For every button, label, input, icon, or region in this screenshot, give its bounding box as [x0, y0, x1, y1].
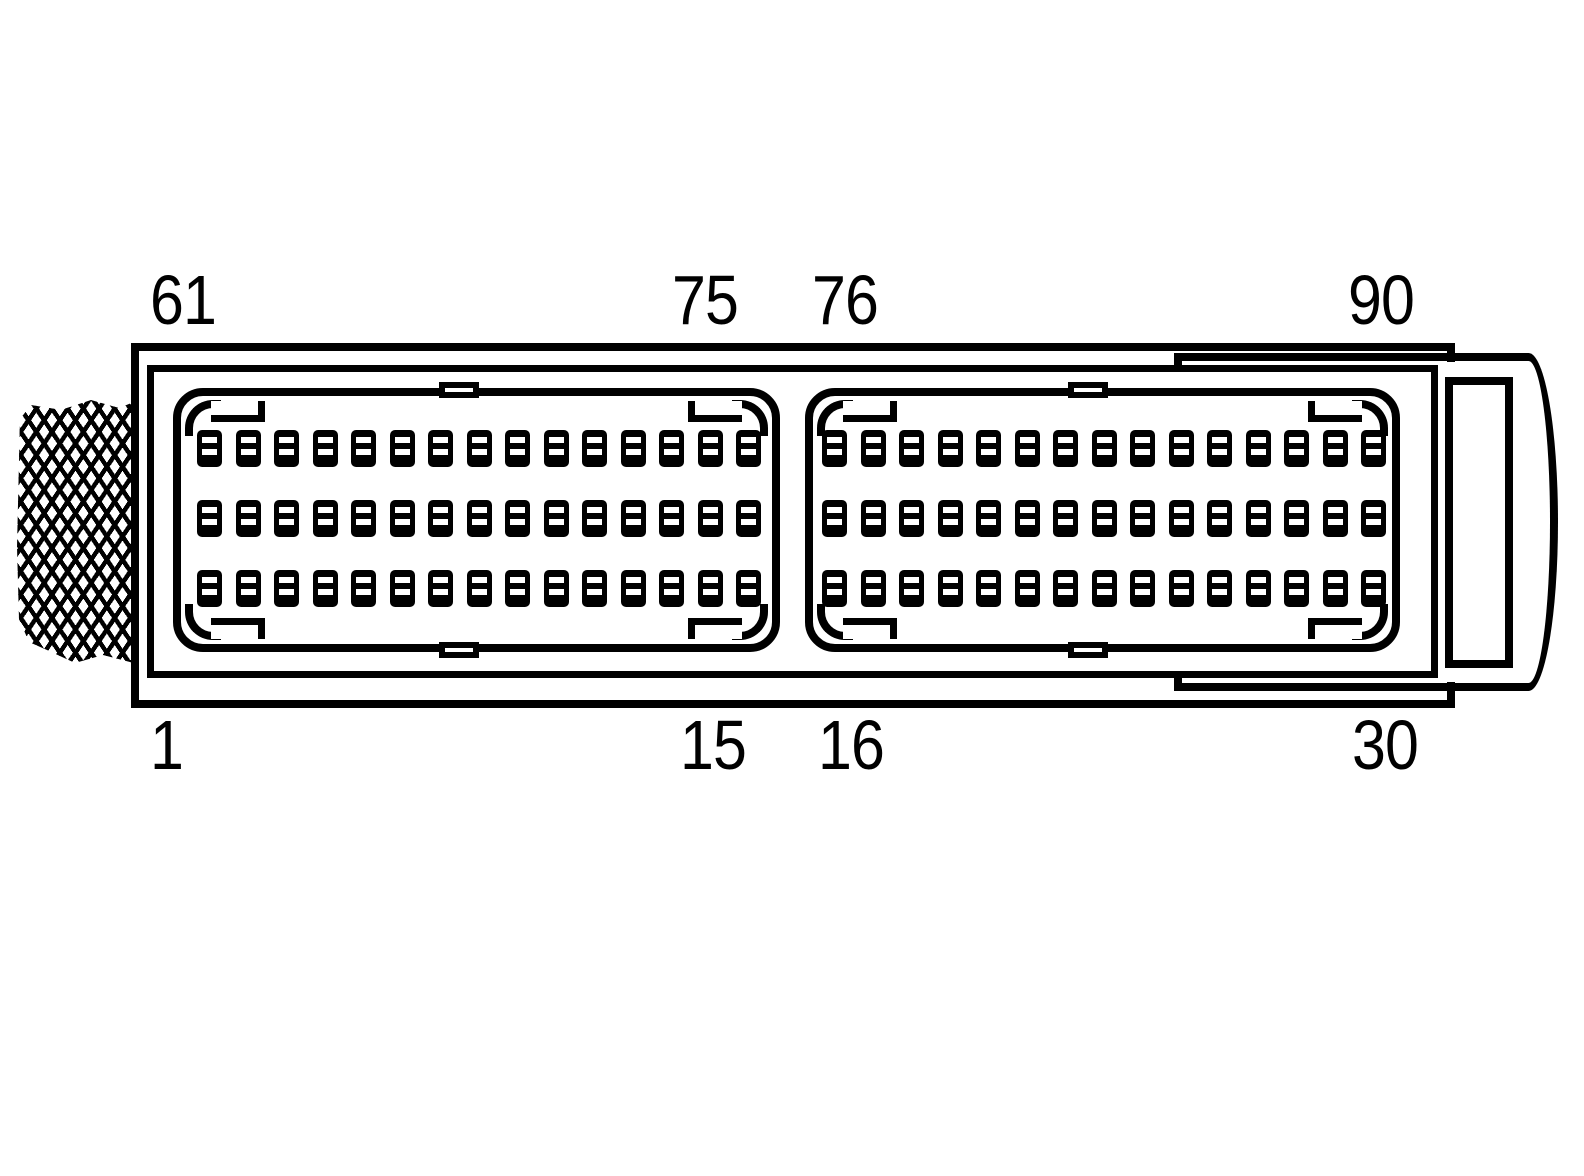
pin-contact-slots — [241, 507, 256, 525]
pin-contact-slots — [626, 507, 641, 525]
pin-contact-slots — [664, 577, 679, 595]
pin-contact — [1169, 570, 1194, 607]
pin-contact-slots — [1328, 507, 1343, 525]
pin-contact-slots — [1366, 507, 1381, 525]
pin-contact — [1207, 570, 1232, 607]
corner-key-notch — [843, 401, 897, 422]
pin-contact-slots — [202, 577, 217, 595]
pin-contact-slots — [703, 437, 718, 455]
pin-contact — [899, 500, 924, 537]
pin-contact-slots — [1289, 437, 1304, 455]
pin-contact — [1092, 500, 1117, 537]
pin-block-1 — [173, 388, 780, 652]
pin-contact-slots — [626, 437, 641, 455]
pin-contact-slots — [433, 437, 448, 455]
pin-contact-slots — [827, 437, 842, 455]
pin-contact-slots — [1135, 507, 1150, 525]
pin-contact — [467, 430, 492, 467]
pin-contact-slots — [943, 437, 958, 455]
pin-contact-slots — [626, 577, 641, 595]
pin-label-16: 16 — [818, 710, 884, 780]
corner-key-notch — [211, 618, 265, 639]
pin-contact — [1284, 430, 1309, 467]
pin-contact — [736, 570, 761, 607]
pin-contact-slots — [866, 507, 881, 525]
pin-contact-slots — [1366, 437, 1381, 455]
pin-contact — [544, 570, 569, 607]
pin-contact-slots — [549, 507, 564, 525]
pin-contact — [938, 430, 963, 467]
pin-contact — [313, 430, 338, 467]
pin-contact — [351, 430, 376, 467]
pin-contact-slots — [202, 507, 217, 525]
pin-contact — [582, 570, 607, 607]
pin-contact-slots — [433, 577, 448, 595]
corner-key-notch — [211, 401, 265, 422]
pin-contact — [1323, 570, 1348, 607]
pin-label-61: 61 — [150, 265, 216, 335]
pin-contact — [467, 500, 492, 537]
pin-contact — [938, 500, 963, 537]
pin-contact — [1130, 500, 1155, 537]
pin-contact-slots — [703, 507, 718, 525]
pin-contact — [1361, 570, 1386, 607]
pin-contact — [236, 500, 261, 537]
pin-contact — [505, 570, 530, 607]
pin-contact — [467, 570, 492, 607]
pin-contact-slots — [1328, 577, 1343, 595]
pin-contact-slots — [1020, 437, 1035, 455]
pin-label-90: 90 — [1348, 265, 1414, 335]
pin-contact-slots — [395, 437, 410, 455]
pin-contact-slots — [981, 507, 996, 525]
pin-contact-slots — [1058, 507, 1073, 525]
keying-tab-bottom-block2 — [1068, 642, 1108, 658]
pin-contact-slots — [1289, 507, 1304, 525]
pin-contact — [1207, 430, 1232, 467]
pin-contact-slots — [587, 577, 602, 595]
pin-contact — [976, 500, 1001, 537]
pin-contact-slots — [279, 507, 294, 525]
pin-contact-slots — [1135, 577, 1150, 595]
pin-contact — [544, 500, 569, 537]
pin-contact-slots — [866, 577, 881, 595]
pin-contact — [313, 570, 338, 607]
wire-mesh-sleeve — [17, 397, 134, 663]
pin-contact — [351, 570, 376, 607]
pin-contact — [390, 430, 415, 467]
pin-contact — [236, 430, 261, 467]
pin-contact-slots — [703, 577, 718, 595]
pin-contact — [274, 570, 299, 607]
pin-contact-slots — [943, 577, 958, 595]
pin-contact — [659, 500, 684, 537]
pin-contact-slots — [549, 437, 564, 455]
pin-contact-slots — [981, 577, 996, 595]
pin-contact — [659, 570, 684, 607]
pin-contact-slots — [943, 507, 958, 525]
pin-contact — [659, 430, 684, 467]
pin-contact-slots — [510, 577, 525, 595]
pin-contact-slots — [866, 437, 881, 455]
pin-contact — [1246, 500, 1271, 537]
pin-contact-slots — [549, 577, 564, 595]
pin-contact-slots — [241, 437, 256, 455]
pin-contact-slots — [1251, 577, 1266, 595]
pin-contact — [428, 500, 453, 537]
pin-contact — [899, 430, 924, 467]
pin-contact — [698, 430, 723, 467]
pin-contact — [582, 500, 607, 537]
pin-block-2 — [805, 388, 1400, 652]
pin-contact-slots — [472, 437, 487, 455]
ecu-connector-diagram: 61 75 76 90 1 15 16 30 — [0, 0, 1584, 1176]
pin-contact — [197, 500, 222, 537]
pin-contact — [1015, 570, 1040, 607]
pin-contact — [938, 570, 963, 607]
pin-contact-slots — [1174, 507, 1189, 525]
pin-contact-slots — [1058, 437, 1073, 455]
pin-contact — [313, 500, 338, 537]
pin-contact — [1284, 570, 1309, 607]
pin-contact — [1015, 430, 1040, 467]
pin-contact-slots — [741, 507, 756, 525]
pin-contact — [1246, 430, 1271, 467]
pin-contact-slots — [904, 577, 919, 595]
pin-contact-slots — [904, 437, 919, 455]
pin-contact — [1361, 430, 1386, 467]
pin-contact-slots — [1251, 507, 1266, 525]
pin-contact — [1130, 570, 1155, 607]
pin-contact-slots — [318, 507, 333, 525]
pin-contact-slots — [1020, 507, 1035, 525]
pin-contact-slots — [827, 577, 842, 595]
pin-contact — [1323, 430, 1348, 467]
pin-contact — [428, 570, 453, 607]
keying-tab-top-block1 — [439, 382, 479, 398]
corner-key-notch — [843, 618, 897, 639]
corner-key-notch — [688, 618, 742, 639]
pin-label-75: 75 — [672, 265, 738, 335]
pin-contact-slots — [1328, 437, 1343, 455]
pin-contact — [621, 430, 646, 467]
pin-contact-slots — [1212, 437, 1227, 455]
pin-contact-slots — [395, 577, 410, 595]
pin-contact — [822, 570, 847, 607]
pin-contact — [1246, 570, 1271, 607]
pin-contact — [274, 430, 299, 467]
pin-contact-slots — [741, 577, 756, 595]
pin-contact-slots — [472, 507, 487, 525]
pin-contact-slots — [1097, 577, 1112, 595]
pin-contact-slots — [279, 437, 294, 455]
pin-contact-slots — [356, 577, 371, 595]
pin-contact-slots — [241, 577, 256, 595]
pin-contact — [1361, 500, 1386, 537]
pin-label-15: 15 — [680, 710, 746, 780]
pin-label-1: 1 — [150, 710, 183, 780]
pin-contact-slots — [1097, 437, 1112, 455]
pin-contact — [544, 430, 569, 467]
pin-contact — [505, 430, 530, 467]
pin-label-76: 76 — [812, 265, 878, 335]
pin-contact — [621, 500, 646, 537]
pin-contact — [976, 430, 1001, 467]
keying-tab-bottom-block1 — [439, 642, 479, 658]
pin-contact — [822, 500, 847, 537]
corner-key-notch — [688, 401, 742, 422]
pin-contact-slots — [510, 437, 525, 455]
pin-contact-slots — [1366, 577, 1381, 595]
pin-contact-slots — [202, 437, 217, 455]
pin-contact — [1053, 570, 1078, 607]
pin-contact-slots — [587, 437, 602, 455]
pin-contact-slots — [318, 577, 333, 595]
pin-contact — [197, 430, 222, 467]
pin-contact — [861, 570, 886, 607]
pin-contact-slots — [664, 507, 679, 525]
pin-contact — [1207, 500, 1232, 537]
pin-contact — [390, 570, 415, 607]
pin-contact — [1323, 500, 1348, 537]
pin-contact — [351, 500, 376, 537]
corner-key-notch — [1308, 401, 1362, 422]
pin-contact-slots — [1212, 577, 1227, 595]
pin-contact-slots — [904, 507, 919, 525]
pin-contact — [736, 430, 761, 467]
pin-contact-slots — [1135, 437, 1150, 455]
pin-contact-slots — [1212, 507, 1227, 525]
pin-contact — [1284, 500, 1309, 537]
pin-contact — [861, 430, 886, 467]
pin-contact-slots — [356, 507, 371, 525]
pin-contact — [197, 570, 222, 607]
pin-contact-slots — [1058, 577, 1073, 595]
pin-contact-slots — [1097, 507, 1112, 525]
pin-contact — [582, 430, 607, 467]
pin-contact — [1015, 500, 1040, 537]
pin-contact-slots — [664, 437, 679, 455]
pin-contact — [1092, 430, 1117, 467]
pin-contact-slots — [472, 577, 487, 595]
pin-contact — [736, 500, 761, 537]
pin-contact — [1169, 500, 1194, 537]
pin-contact — [1092, 570, 1117, 607]
pin-contact-slots — [356, 437, 371, 455]
pin-contact — [1169, 430, 1194, 467]
pin-contact-slots — [1289, 577, 1304, 595]
pin-contact-slots — [827, 507, 842, 525]
pin-contact — [976, 570, 1001, 607]
pin-contact — [1053, 430, 1078, 467]
pin-contact-slots — [1251, 437, 1266, 455]
corner-key-notch — [1308, 618, 1362, 639]
pin-contact — [274, 500, 299, 537]
pin-contact-slots — [395, 507, 410, 525]
pin-contact-slots — [433, 507, 448, 525]
pin-contact-slots — [1174, 577, 1189, 595]
pin-contact-slots — [981, 437, 996, 455]
pin-contact — [822, 430, 847, 467]
pin-contact — [861, 500, 886, 537]
pin-contact — [236, 570, 261, 607]
pin-contact-slots — [1020, 577, 1035, 595]
pin-contact — [1053, 500, 1078, 537]
pin-contact — [1130, 430, 1155, 467]
pin-contact — [505, 500, 530, 537]
pin-contact-slots — [510, 507, 525, 525]
pin-contact-slots — [1174, 437, 1189, 455]
pin-contact-slots — [741, 437, 756, 455]
pin-contact — [698, 500, 723, 537]
pin-contact-slots — [587, 507, 602, 525]
pin-contact — [899, 570, 924, 607]
pin-contact — [390, 500, 415, 537]
pin-contact — [428, 430, 453, 467]
keying-tab-top-block2 — [1068, 382, 1108, 398]
pin-contact — [621, 570, 646, 607]
pin-contact-slots — [318, 437, 333, 455]
pin-contact-slots — [279, 577, 294, 595]
pin-label-30: 30 — [1352, 710, 1418, 780]
slide-lock-bar — [1445, 377, 1513, 668]
pin-contact — [698, 570, 723, 607]
